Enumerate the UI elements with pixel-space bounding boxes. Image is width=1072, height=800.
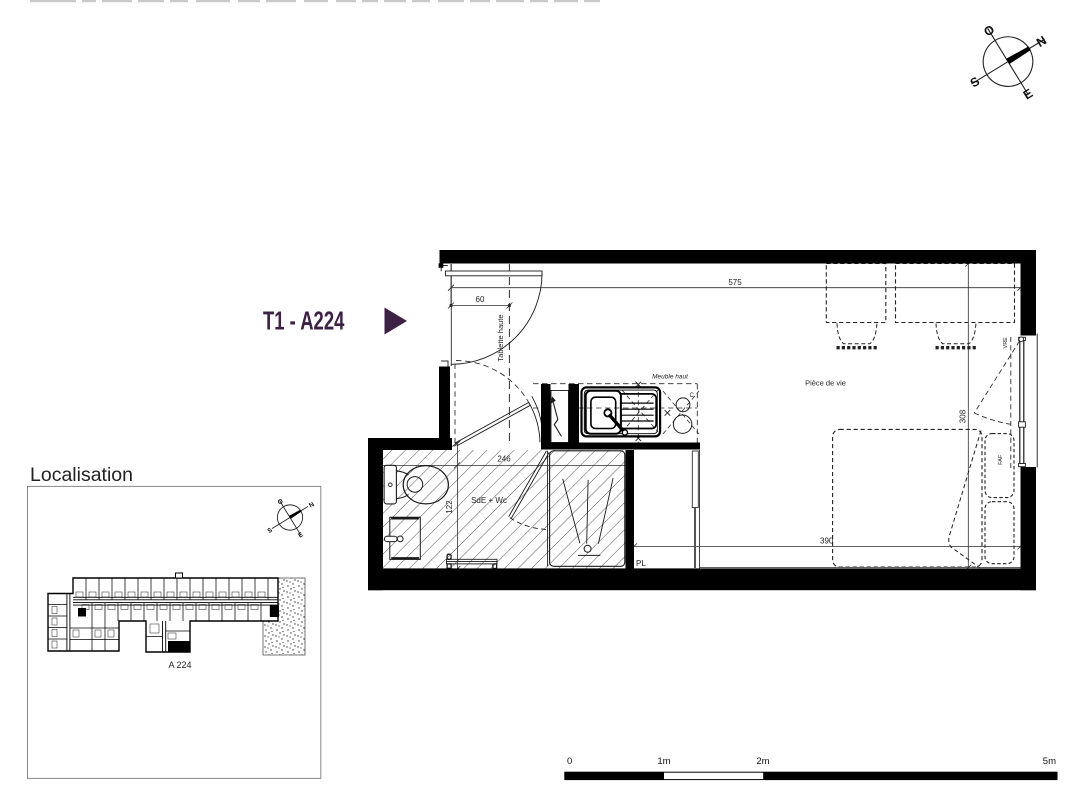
svg-text:T1 - A224: T1 - A224 — [263, 306, 345, 335]
svg-text:VRE: VRE — [1003, 337, 1009, 349]
svg-text:Tablette haute: Tablette haute — [496, 314, 505, 361]
svg-text:122: 122 — [445, 500, 454, 514]
svg-text:E: E — [297, 531, 305, 540]
svg-text:FAF: FAF — [998, 454, 1004, 465]
svg-text:246: 246 — [497, 454, 511, 463]
svg-text:390: 390 — [820, 537, 834, 546]
svg-text:575: 575 — [728, 278, 742, 287]
svg-text:2m: 2m — [756, 756, 769, 767]
svg-text:Localisation: Localisation — [30, 464, 133, 486]
svg-text:N: N — [308, 501, 316, 510]
svg-text:O: O — [981, 22, 997, 39]
svg-text:S: S — [968, 74, 982, 90]
svg-text:1m: 1m — [657, 756, 670, 767]
svg-text:0: 0 — [567, 756, 572, 767]
svg-text:N: N — [1034, 33, 1049, 50]
svg-text:SdE + Wc: SdE + Wc — [471, 496, 507, 505]
svg-text:5m: 5m — [1043, 756, 1056, 767]
svg-text:C: C — [690, 393, 695, 399]
svg-text:PL: PL — [636, 559, 646, 568]
svg-text:60: 60 — [476, 295, 485, 304]
svg-text:E: E — [1021, 86, 1035, 102]
svg-text:Pièce de vie: Pièce de vie — [805, 379, 846, 388]
svg-text:308: 308 — [959, 409, 968, 423]
svg-text:A 224: A 224 — [168, 660, 191, 670]
svg-text:O: O — [277, 498, 285, 507]
svg-text:Meuble haut: Meuble haut — [652, 374, 689, 381]
